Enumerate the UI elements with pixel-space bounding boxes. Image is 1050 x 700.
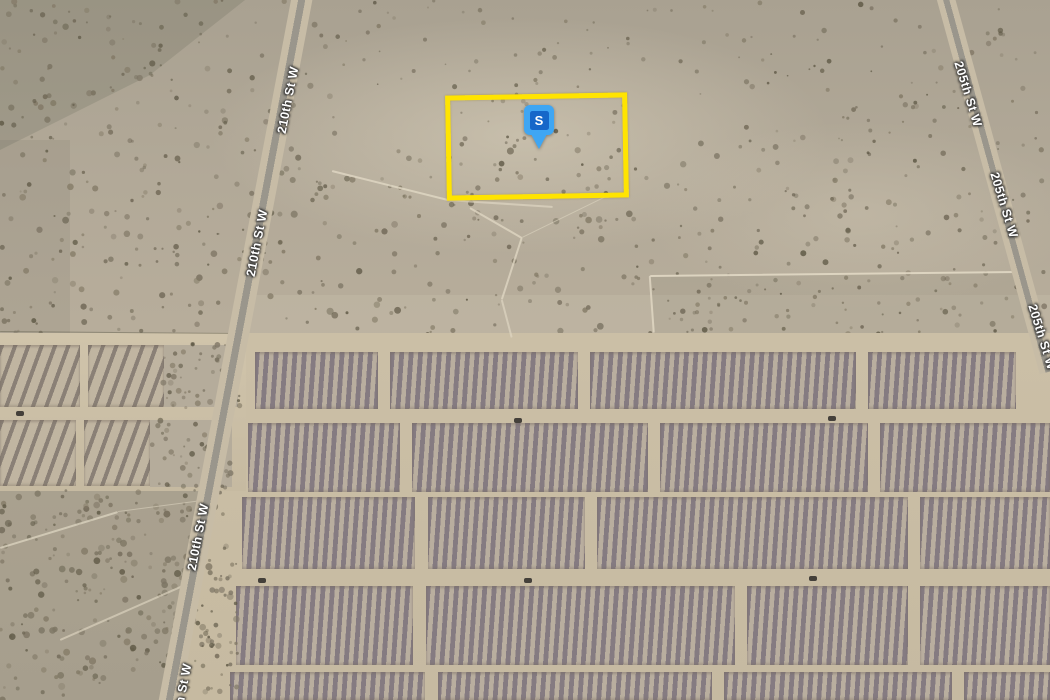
vehicle-dot: [809, 576, 817, 581]
marker-pin-badge: S: [530, 111, 549, 130]
satellite-map[interactable]: 210th St W210th St W210th St W210th St W…: [0, 0, 1050, 700]
vehicle-dot: [258, 578, 266, 583]
vehicle-dot: [524, 578, 532, 583]
vehicle-dot: [16, 411, 24, 416]
map-marker[interactable]: S: [524, 105, 554, 153]
marker-pin-tail: [531, 134, 547, 149]
vehicle-dot: [514, 418, 522, 423]
vehicle-dot: [828, 416, 836, 421]
marker-label: S: [535, 114, 544, 127]
